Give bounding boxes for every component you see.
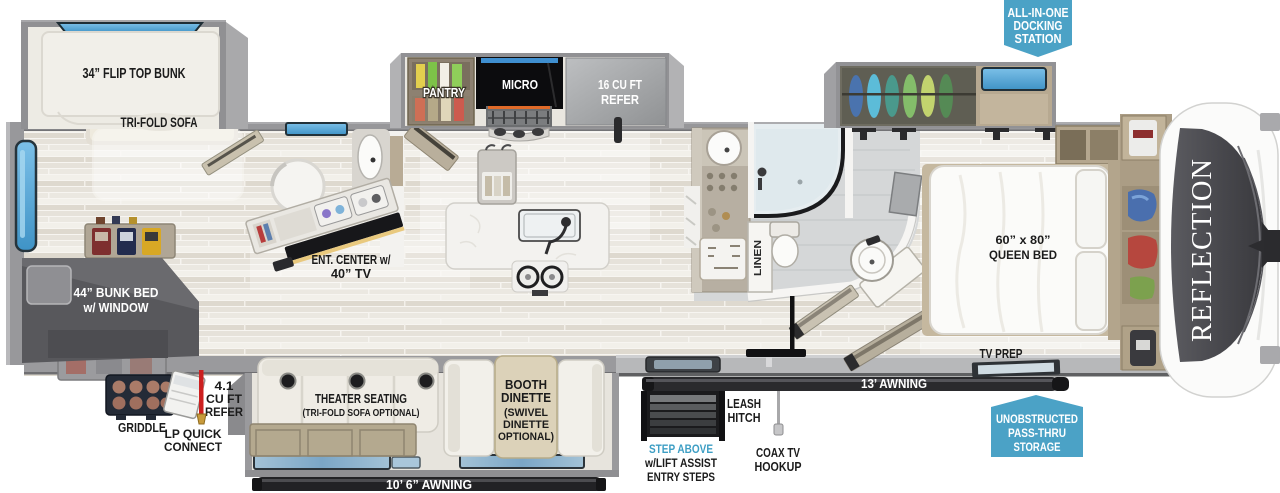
svg-text:w/LIFT ASSIST: w/LIFT ASSIST bbox=[644, 456, 717, 470]
svg-text:40” TV: 40” TV bbox=[331, 267, 372, 281]
svg-text:DINETTE: DINETTE bbox=[503, 419, 549, 431]
svg-text:13’ AWNING: 13’ AWNING bbox=[861, 377, 927, 391]
svg-text:TV PREP: TV PREP bbox=[980, 347, 1023, 361]
svg-text:CU FT: CU FT bbox=[206, 392, 243, 406]
svg-text:(SWIVEL: (SWIVEL bbox=[504, 407, 548, 419]
svg-text:STATION: STATION bbox=[1015, 32, 1062, 46]
svg-text:HOOKUP: HOOKUP bbox=[755, 460, 802, 474]
svg-text:LP QUICK: LP QUICK bbox=[165, 427, 222, 441]
svg-text:44” BUNK BED: 44” BUNK BED bbox=[74, 286, 159, 300]
svg-text:PANTRY: PANTRY bbox=[423, 85, 465, 100]
svg-text:DOCKING: DOCKING bbox=[1014, 19, 1063, 33]
svg-text:UNOBSTRUCTED: UNOBSTRUCTED bbox=[996, 412, 1078, 426]
svg-text:(TRI-FOLD SOFA OPTIONAL): (TRI-FOLD SOFA OPTIONAL) bbox=[303, 407, 420, 419]
svg-text:STEP ABOVE: STEP ABOVE bbox=[649, 442, 713, 456]
svg-text:PASS-THRU: PASS-THRU bbox=[1008, 426, 1066, 440]
svg-text:OPTIONAL): OPTIONAL) bbox=[498, 431, 554, 443]
svg-text:16 CU FT: 16 CU FT bbox=[598, 77, 642, 92]
svg-text:BOOTH: BOOTH bbox=[505, 378, 547, 392]
svg-text:CONNECT: CONNECT bbox=[164, 440, 223, 454]
svg-text:REFER: REFER bbox=[601, 92, 640, 107]
svg-text:DINETTE: DINETTE bbox=[501, 391, 551, 405]
svg-text:34” FLIP TOP BUNK: 34” FLIP TOP BUNK bbox=[83, 65, 186, 82]
svg-text:LEASH: LEASH bbox=[727, 397, 761, 411]
svg-text:LINEN: LINEN bbox=[753, 240, 764, 276]
svg-text:QUEEN BED: QUEEN BED bbox=[989, 248, 1057, 262]
svg-text:HITCH: HITCH bbox=[728, 411, 761, 425]
svg-text:4.1: 4.1 bbox=[215, 379, 234, 393]
svg-text:ALL-IN-ONE: ALL-IN-ONE bbox=[1008, 6, 1069, 20]
svg-text:60” x 80”: 60” x 80” bbox=[996, 233, 1051, 247]
svg-text:10’ 6” AWNING: 10’ 6” AWNING bbox=[386, 478, 472, 492]
svg-text:MICRO: MICRO bbox=[502, 77, 538, 92]
svg-text:ENT. CENTER w/: ENT. CENTER w/ bbox=[312, 253, 391, 267]
svg-text:GRIDDLE: GRIDDLE bbox=[118, 421, 166, 435]
svg-text:TRI-FOLD SOFA: TRI-FOLD SOFA bbox=[121, 115, 198, 130]
svg-text:COAX TV: COAX TV bbox=[756, 446, 801, 460]
svg-text:STORAGE: STORAGE bbox=[1014, 440, 1061, 454]
svg-text:REFER: REFER bbox=[205, 405, 243, 419]
svg-text:REFLECTION: REFLECTION bbox=[1187, 158, 1218, 342]
svg-text:w/ WINDOW: w/ WINDOW bbox=[83, 301, 149, 315]
svg-text:ENTRY STEPS: ENTRY STEPS bbox=[647, 470, 715, 484]
svg-text:THEATER SEATING: THEATER SEATING bbox=[315, 391, 407, 406]
